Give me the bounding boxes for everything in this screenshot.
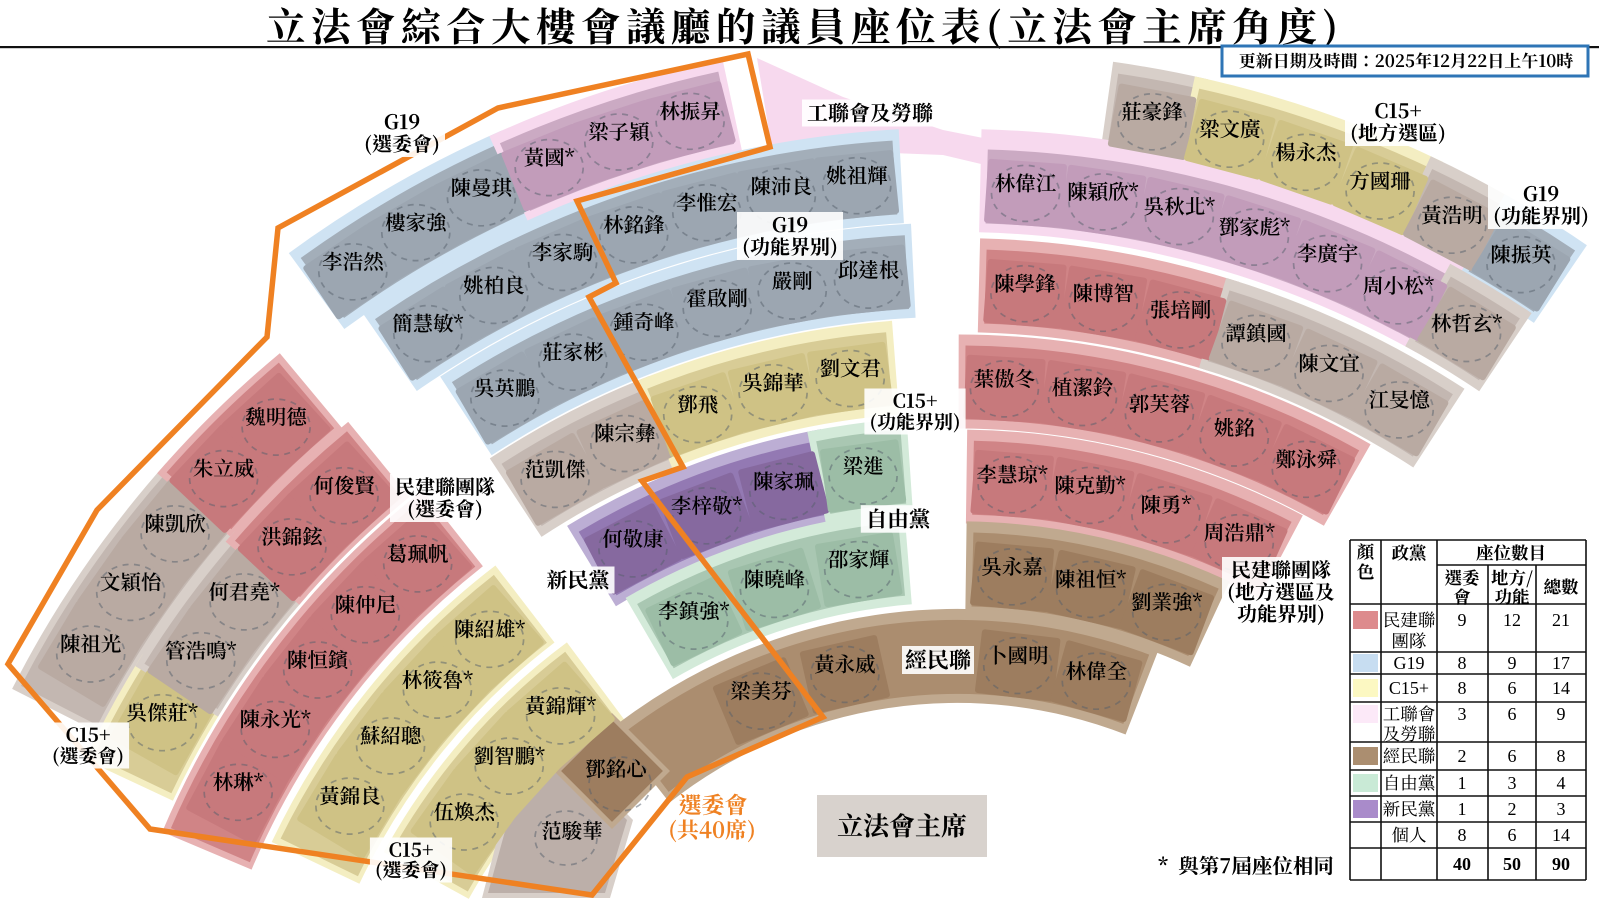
svg-text:50: 50 [1503,854,1521,874]
svg-text:17: 17 [1552,653,1570,673]
svg-text:6: 6 [1508,825,1517,845]
svg-text:8: 8 [1557,746,1566,766]
svg-text:8: 8 [1458,678,1467,698]
svg-text:14: 14 [1552,678,1570,698]
svg-text:6: 6 [1508,678,1517,698]
svg-text:1: 1 [1458,799,1467,819]
svg-text:G19: G19 [1394,653,1425,673]
svg-text:9: 9 [1557,704,1566,724]
svg-text:3: 3 [1458,704,1467,724]
svg-text:1: 1 [1458,773,1467,793]
svg-text:6: 6 [1508,704,1517,724]
svg-text:90: 90 [1552,854,1570,874]
svg-text:8: 8 [1458,653,1467,673]
svg-text:9: 9 [1508,653,1517,673]
svg-text:3: 3 [1557,799,1566,819]
svg-text:8: 8 [1458,825,1467,845]
svg-text:40: 40 [1453,854,1471,874]
svg-text:12: 12 [1503,610,1521,630]
svg-text:9: 9 [1458,610,1467,630]
svg-text:4: 4 [1557,773,1566,793]
svg-text:3: 3 [1508,773,1517,793]
svg-text:2: 2 [1458,746,1467,766]
svg-text:21: 21 [1552,610,1570,630]
svg-text:14: 14 [1552,825,1570,845]
svg-text:C15+: C15+ [1389,678,1429,698]
svg-text:2: 2 [1508,799,1517,819]
svg-text:6: 6 [1508,746,1517,766]
